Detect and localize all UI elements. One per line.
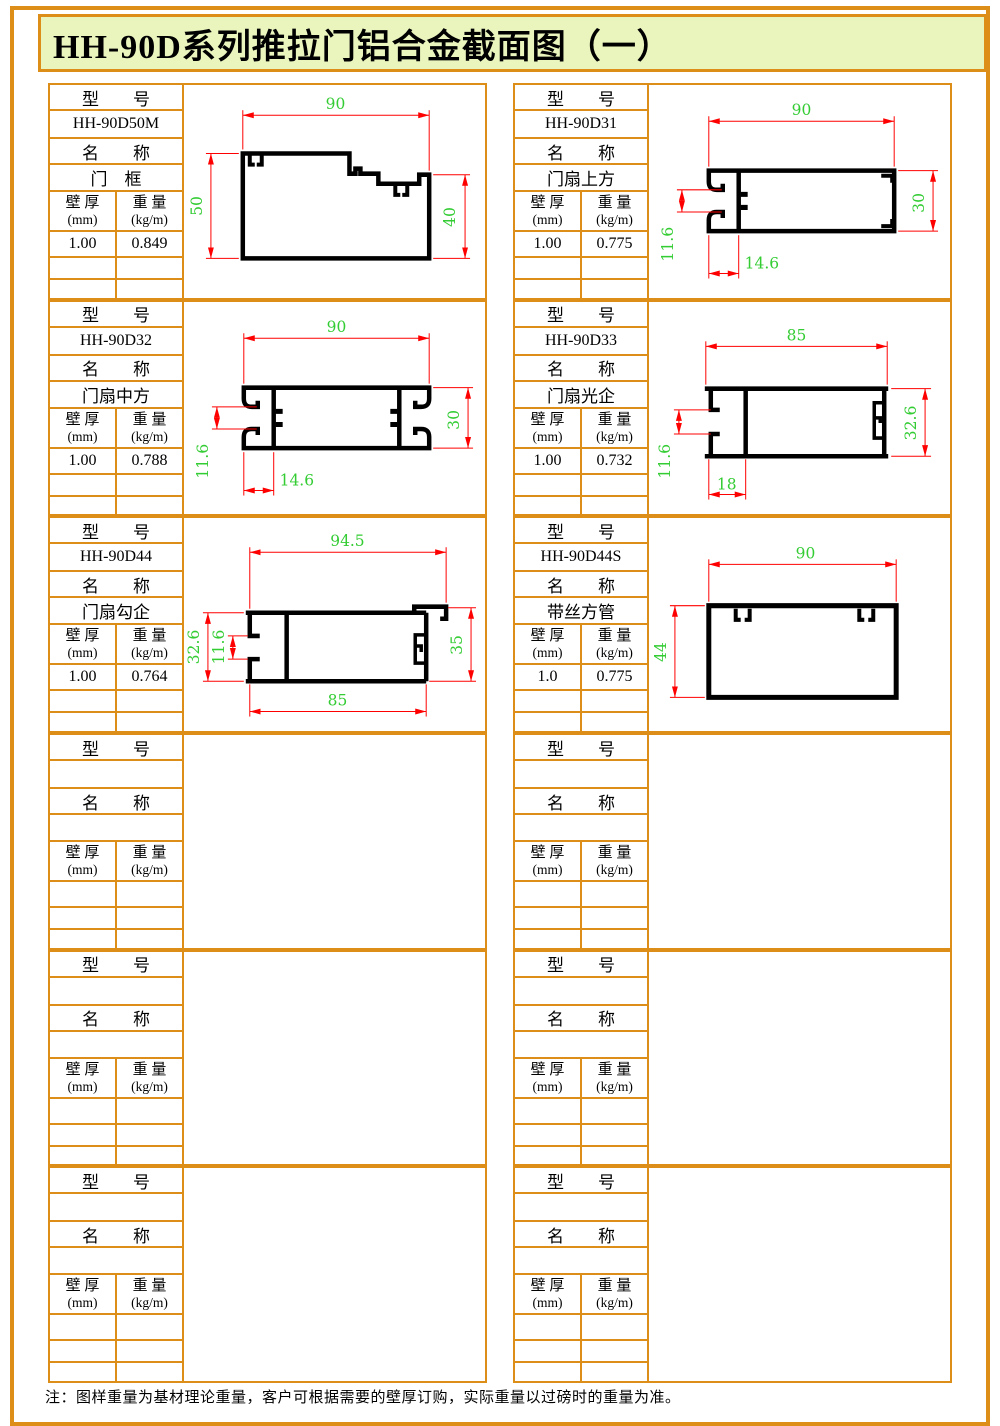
empty-row bbox=[515, 280, 647, 298]
model-label: 型 号 bbox=[50, 302, 182, 328]
name-value bbox=[50, 1032, 182, 1059]
dimension-lines bbox=[670, 560, 896, 698]
empty-row bbox=[515, 1125, 647, 1147]
model-value bbox=[50, 978, 182, 1006]
dim-side: 30 bbox=[445, 410, 463, 430]
spec-table: 型 号 名 称 壁 厚(mm) 重 量(kg/m) bbox=[50, 735, 184, 948]
thickness-value: 1.00 bbox=[50, 449, 117, 473]
empty-row bbox=[50, 908, 182, 930]
thickness-value bbox=[515, 1315, 582, 1339]
empty-row bbox=[50, 930, 182, 948]
weight-value bbox=[582, 1099, 647, 1123]
empty-row bbox=[50, 497, 182, 515]
model-label: 型 号 bbox=[50, 518, 182, 544]
profile-outline bbox=[243, 154, 429, 259]
empty-row bbox=[515, 1341, 647, 1363]
empty-row bbox=[50, 280, 182, 298]
dim-gap: 11.6 bbox=[656, 444, 674, 479]
profile-drawing: 94.5 32.6 11.6 35 85 bbox=[184, 518, 485, 731]
name-label: 名 称 bbox=[515, 139, 647, 165]
empty-row bbox=[50, 258, 182, 280]
model-label: 型 号 bbox=[515, 735, 647, 761]
profile-card-empty: 型 号 名 称 壁 厚(mm) 重 量(kg/m) bbox=[513, 733, 952, 950]
cross-section-svg: 85 32.6 11.6 18 bbox=[649, 302, 950, 515]
thickness-value: 1.00 bbox=[50, 665, 117, 689]
name-label: 名 称 bbox=[515, 356, 647, 382]
profile-drawing-empty bbox=[649, 952, 950, 1165]
model-value bbox=[515, 978, 647, 1006]
model-label: 型 号 bbox=[515, 85, 647, 111]
thickness-unit: (mm) bbox=[68, 212, 98, 227]
model-value bbox=[50, 1194, 182, 1222]
cross-section-svg: 90 30 11.6 14.6 bbox=[649, 85, 950, 298]
name-label: 名 称 bbox=[515, 789, 647, 815]
model-value: HH-90D44 bbox=[50, 544, 182, 572]
dim-side: 30 bbox=[910, 193, 928, 213]
name-value: 带丝方管 bbox=[515, 598, 647, 625]
spec-table: 型 号 HH-90D50M 名 称 门 框 壁 厚(mm) 重 量(kg/m) … bbox=[50, 85, 184, 298]
model-value bbox=[515, 1194, 647, 1222]
thickness-weight-header: 壁 厚(mm) 重 量(kg/m) bbox=[50, 1275, 182, 1315]
name-value: 门 框 bbox=[50, 165, 182, 192]
profile-card-empty: 型 号 名 称 壁 厚(mm) 重 量(kg/m) bbox=[513, 1166, 952, 1383]
weight-value: 0.775 bbox=[582, 665, 647, 689]
name-label: 名 称 bbox=[515, 1006, 647, 1032]
dim-inset: 14.6 bbox=[745, 254, 779, 272]
profile-card: 型 号 HH-90D50M 名 称 门 框 壁 厚(mm) 重 量(kg/m) … bbox=[48, 83, 487, 300]
name-value bbox=[50, 815, 182, 842]
name-value: 门扇勾企 bbox=[50, 598, 182, 625]
dim-left-height: 50 bbox=[188, 196, 206, 216]
thickness-value: 1.00 bbox=[50, 232, 117, 256]
weight-value: 0.764 bbox=[117, 665, 182, 689]
weight-value bbox=[117, 1315, 182, 1339]
model-value bbox=[515, 761, 647, 789]
thickness-value bbox=[515, 882, 582, 906]
model-value: HH-90D44S bbox=[515, 544, 647, 572]
thickness-value bbox=[50, 1315, 117, 1339]
dimension-lines bbox=[674, 341, 931, 499]
footnote: 注：图样重量为基材理论重量，客户可根据需要的壁厚订购，实际重量以过磅时的重量为准… bbox=[45, 1386, 681, 1407]
dim-right-height: 40 bbox=[441, 207, 459, 227]
profile-card: 型 号 HH-90D44 名 称 门扇勾企 壁 厚(mm) 重 量(kg/m) … bbox=[48, 516, 487, 733]
thickness-weight-header: 壁 厚(mm) 重 量(kg/m) bbox=[50, 1059, 182, 1099]
spec-table: 型 号 HH-90D32 名 称 门扇中方 壁 厚(mm) 重 量(kg/m) … bbox=[50, 302, 184, 515]
model-label: 型 号 bbox=[515, 518, 647, 544]
thickness-weight-header: 壁 厚(mm) 重 量(kg/m) bbox=[515, 192, 647, 232]
spec-table: 型 号 名 称 壁 厚(mm) 重 量(kg/m) bbox=[515, 952, 649, 1165]
dimension-lines bbox=[212, 333, 473, 495]
cross-section-svg: 90 30 11.6 14.6 bbox=[184, 302, 485, 515]
page-title: HH-90D系列推拉门铝合金截面图（一） bbox=[41, 19, 672, 68]
empty-row bbox=[50, 1125, 182, 1147]
dim-width: 94.5 bbox=[330, 532, 364, 550]
profile-card-empty: 型 号 名 称 壁 厚(mm) 重 量(kg/m) bbox=[48, 950, 487, 1167]
dim-gap: 11.6 bbox=[659, 227, 677, 262]
model-value: HH-90D31 bbox=[515, 111, 647, 139]
profile-grid: 型 号 HH-90D50M 名 称 门 框 壁 厚(mm) 重 量(kg/m) … bbox=[48, 83, 952, 1383]
thickness-value bbox=[515, 1099, 582, 1123]
name-value bbox=[515, 1032, 647, 1059]
name-label: 名 称 bbox=[50, 789, 182, 815]
model-label: 型 号 bbox=[50, 1168, 182, 1194]
dim-width: 90 bbox=[327, 318, 347, 336]
model-label: 型 号 bbox=[50, 85, 182, 111]
empty-row bbox=[50, 1341, 182, 1363]
profile-drawing: 90 30 11.6 14.6 bbox=[184, 302, 485, 515]
thickness-value bbox=[50, 1099, 117, 1123]
empty-row bbox=[515, 1147, 647, 1165]
name-value bbox=[515, 815, 647, 842]
spec-table: 型 号 名 称 壁 厚(mm) 重 量(kg/m) bbox=[50, 952, 184, 1165]
profile-drawing-empty bbox=[649, 1168, 950, 1381]
dim-gap: 11.6 bbox=[210, 630, 228, 665]
thickness-label: 壁 厚 bbox=[66, 195, 100, 212]
profile-drawing: 90 44 bbox=[649, 518, 950, 731]
name-value: 门扇上方 bbox=[515, 165, 647, 192]
dim-side: 44 bbox=[652, 642, 670, 662]
thickness-weight-header: 壁 厚(mm) 重 量(kg/m) bbox=[515, 625, 647, 665]
spec-table: 型 号 名 称 壁 厚(mm) 重 量(kg/m) bbox=[50, 1168, 184, 1381]
dim-inset: 18 bbox=[717, 475, 737, 493]
profile-drawing: 85 32.6 11.6 18 bbox=[649, 302, 950, 515]
profile-card: 型 号 HH-90D31 名 称 门扇上方 壁 厚(mm) 重 量(kg/m) … bbox=[513, 83, 952, 300]
dim-gap: 11.6 bbox=[194, 444, 212, 479]
profile-card-empty: 型 号 名 称 壁 厚(mm) 重 量(kg/m) bbox=[48, 1166, 487, 1383]
title-bar: HH-90D系列推拉门铝合金截面图（一） bbox=[38, 14, 987, 72]
empty-row bbox=[515, 1363, 647, 1381]
profile-card: 型 号 HH-90D32 名 称 门扇中方 壁 厚(mm) 重 量(kg/m) … bbox=[48, 300, 487, 517]
name-label: 名 称 bbox=[515, 572, 647, 598]
name-label: 名 称 bbox=[515, 1222, 647, 1248]
profile-drawing: 90 50 40 bbox=[184, 85, 485, 298]
profile-outline bbox=[705, 388, 888, 456]
thickness-weight-header: 壁 厚(mm) 重 量(kg/m) bbox=[50, 842, 182, 882]
empty-row bbox=[515, 930, 647, 948]
profile-card-empty: 型 号 名 称 壁 厚(mm) 重 量(kg/m) bbox=[513, 950, 952, 1167]
empty-row bbox=[515, 475, 647, 497]
name-label: 名 称 bbox=[50, 1006, 182, 1032]
name-value bbox=[50, 1248, 182, 1275]
profile-outline bbox=[246, 607, 446, 682]
empty-row bbox=[515, 258, 647, 280]
weight-label: 重 量 bbox=[133, 195, 167, 212]
profile-card-empty: 型 号 名 称 壁 厚(mm) 重 量(kg/m) bbox=[48, 733, 487, 950]
thickness-weight-header: 壁 厚(mm) 重 量(kg/m) bbox=[50, 192, 182, 232]
cross-section-svg: 90 44 bbox=[649, 518, 950, 731]
empty-row bbox=[515, 908, 647, 930]
profile-drawing-empty bbox=[184, 1168, 485, 1381]
empty-row bbox=[515, 713, 647, 731]
model-value: HH-90D50M bbox=[50, 111, 182, 139]
thickness-weight-header: 壁 厚(mm) 重 量(kg/m) bbox=[515, 409, 647, 449]
cross-section-svg: 94.5 32.6 11.6 35 85 bbox=[184, 518, 485, 731]
weight-unit: (kg/m) bbox=[131, 212, 168, 227]
model-label: 型 号 bbox=[50, 735, 182, 761]
empty-row bbox=[515, 691, 647, 713]
dim-width: 90 bbox=[326, 95, 346, 113]
empty-row bbox=[50, 691, 182, 713]
profile-outline bbox=[709, 606, 896, 698]
thickness-weight-header: 壁 厚(mm) 重 量(kg/m) bbox=[515, 1275, 647, 1315]
cross-section-svg: 90 50 40 bbox=[184, 85, 485, 298]
weight-value: 0.732 bbox=[582, 449, 647, 473]
dim-bottom-width: 85 bbox=[328, 692, 348, 710]
weight-value: 0.775 bbox=[582, 232, 647, 256]
dimension-lines bbox=[677, 116, 938, 278]
empty-row bbox=[515, 497, 647, 515]
name-value: 门扇光企 bbox=[515, 382, 647, 409]
weight-value bbox=[582, 1315, 647, 1339]
thickness-weight-header: 壁 厚(mm) 重 量(kg/m) bbox=[515, 1059, 647, 1099]
spec-table: 型 号 HH-90D44S 名 称 带丝方管 壁 厚(mm) 重 量(kg/m)… bbox=[515, 518, 649, 731]
dim-right-height: 35 bbox=[448, 635, 466, 655]
model-value: HH-90D32 bbox=[50, 328, 182, 356]
empty-row bbox=[50, 475, 182, 497]
weight-value: 0.849 bbox=[117, 232, 182, 256]
name-value bbox=[515, 1248, 647, 1275]
spec-table: 型 号 名 称 壁 厚(mm) 重 量(kg/m) bbox=[515, 735, 649, 948]
dim-inset: 14.6 bbox=[280, 471, 314, 489]
spec-table: 型 号 HH-90D44 名 称 门扇勾企 壁 厚(mm) 重 量(kg/m) … bbox=[50, 518, 184, 731]
name-label: 名 称 bbox=[50, 356, 182, 382]
profile-drawing: 90 30 11.6 14.6 bbox=[649, 85, 950, 298]
dim-width: 85 bbox=[787, 326, 807, 344]
thickness-weight-header: 壁 厚(mm) 重 量(kg/m) bbox=[50, 625, 182, 665]
model-label: 型 号 bbox=[515, 952, 647, 978]
profile-card: 型 号 HH-90D33 名 称 门扇光企 壁 厚(mm) 重 量(kg/m) … bbox=[513, 300, 952, 517]
model-label: 型 号 bbox=[515, 302, 647, 328]
thickness-value: 1.00 bbox=[515, 232, 582, 256]
dim-side: 32.6 bbox=[902, 405, 920, 440]
name-label: 名 称 bbox=[50, 139, 182, 165]
empty-row bbox=[50, 1147, 182, 1165]
spec-table: 型 号 HH-90D33 名 称 门扇光企 壁 厚(mm) 重 量(kg/m) … bbox=[515, 302, 649, 515]
thickness-value: 1.0 bbox=[515, 665, 582, 689]
empty-row bbox=[50, 713, 182, 731]
profile-outline bbox=[244, 387, 429, 447]
weight-value: 0.788 bbox=[117, 449, 182, 473]
profile-drawing-empty bbox=[184, 735, 485, 948]
spec-table: 型 号 名 称 壁 厚(mm) 重 量(kg/m) bbox=[515, 1168, 649, 1381]
name-label: 名 称 bbox=[50, 1222, 182, 1248]
thickness-weight-header: 壁 厚(mm) 重 量(kg/m) bbox=[50, 409, 182, 449]
dim-width: 90 bbox=[796, 545, 816, 563]
model-value bbox=[50, 761, 182, 789]
thickness-value bbox=[50, 882, 117, 906]
thickness-value: 1.00 bbox=[515, 449, 582, 473]
profile-outline bbox=[709, 171, 894, 231]
model-value: HH-90D33 bbox=[515, 328, 647, 356]
model-label: 型 号 bbox=[515, 1168, 647, 1194]
profile-drawing-empty bbox=[649, 735, 950, 948]
weight-value bbox=[582, 882, 647, 906]
empty-row bbox=[50, 1363, 182, 1381]
dim-width: 90 bbox=[792, 101, 812, 119]
weight-value bbox=[117, 1099, 182, 1123]
profile-card: 型 号 HH-90D44S 名 称 带丝方管 壁 厚(mm) 重 量(kg/m)… bbox=[513, 516, 952, 733]
name-value: 门扇中方 bbox=[50, 382, 182, 409]
weight-value bbox=[117, 882, 182, 906]
spec-table: 型 号 HH-90D31 名 称 门扇上方 壁 厚(mm) 重 量(kg/m) … bbox=[515, 85, 649, 298]
name-label: 名 称 bbox=[50, 572, 182, 598]
dim-left-height: 32.6 bbox=[185, 630, 203, 665]
thickness-weight-header: 壁 厚(mm) 重 量(kg/m) bbox=[515, 842, 647, 882]
profile-drawing-empty bbox=[184, 952, 485, 1165]
model-label: 型 号 bbox=[50, 952, 182, 978]
